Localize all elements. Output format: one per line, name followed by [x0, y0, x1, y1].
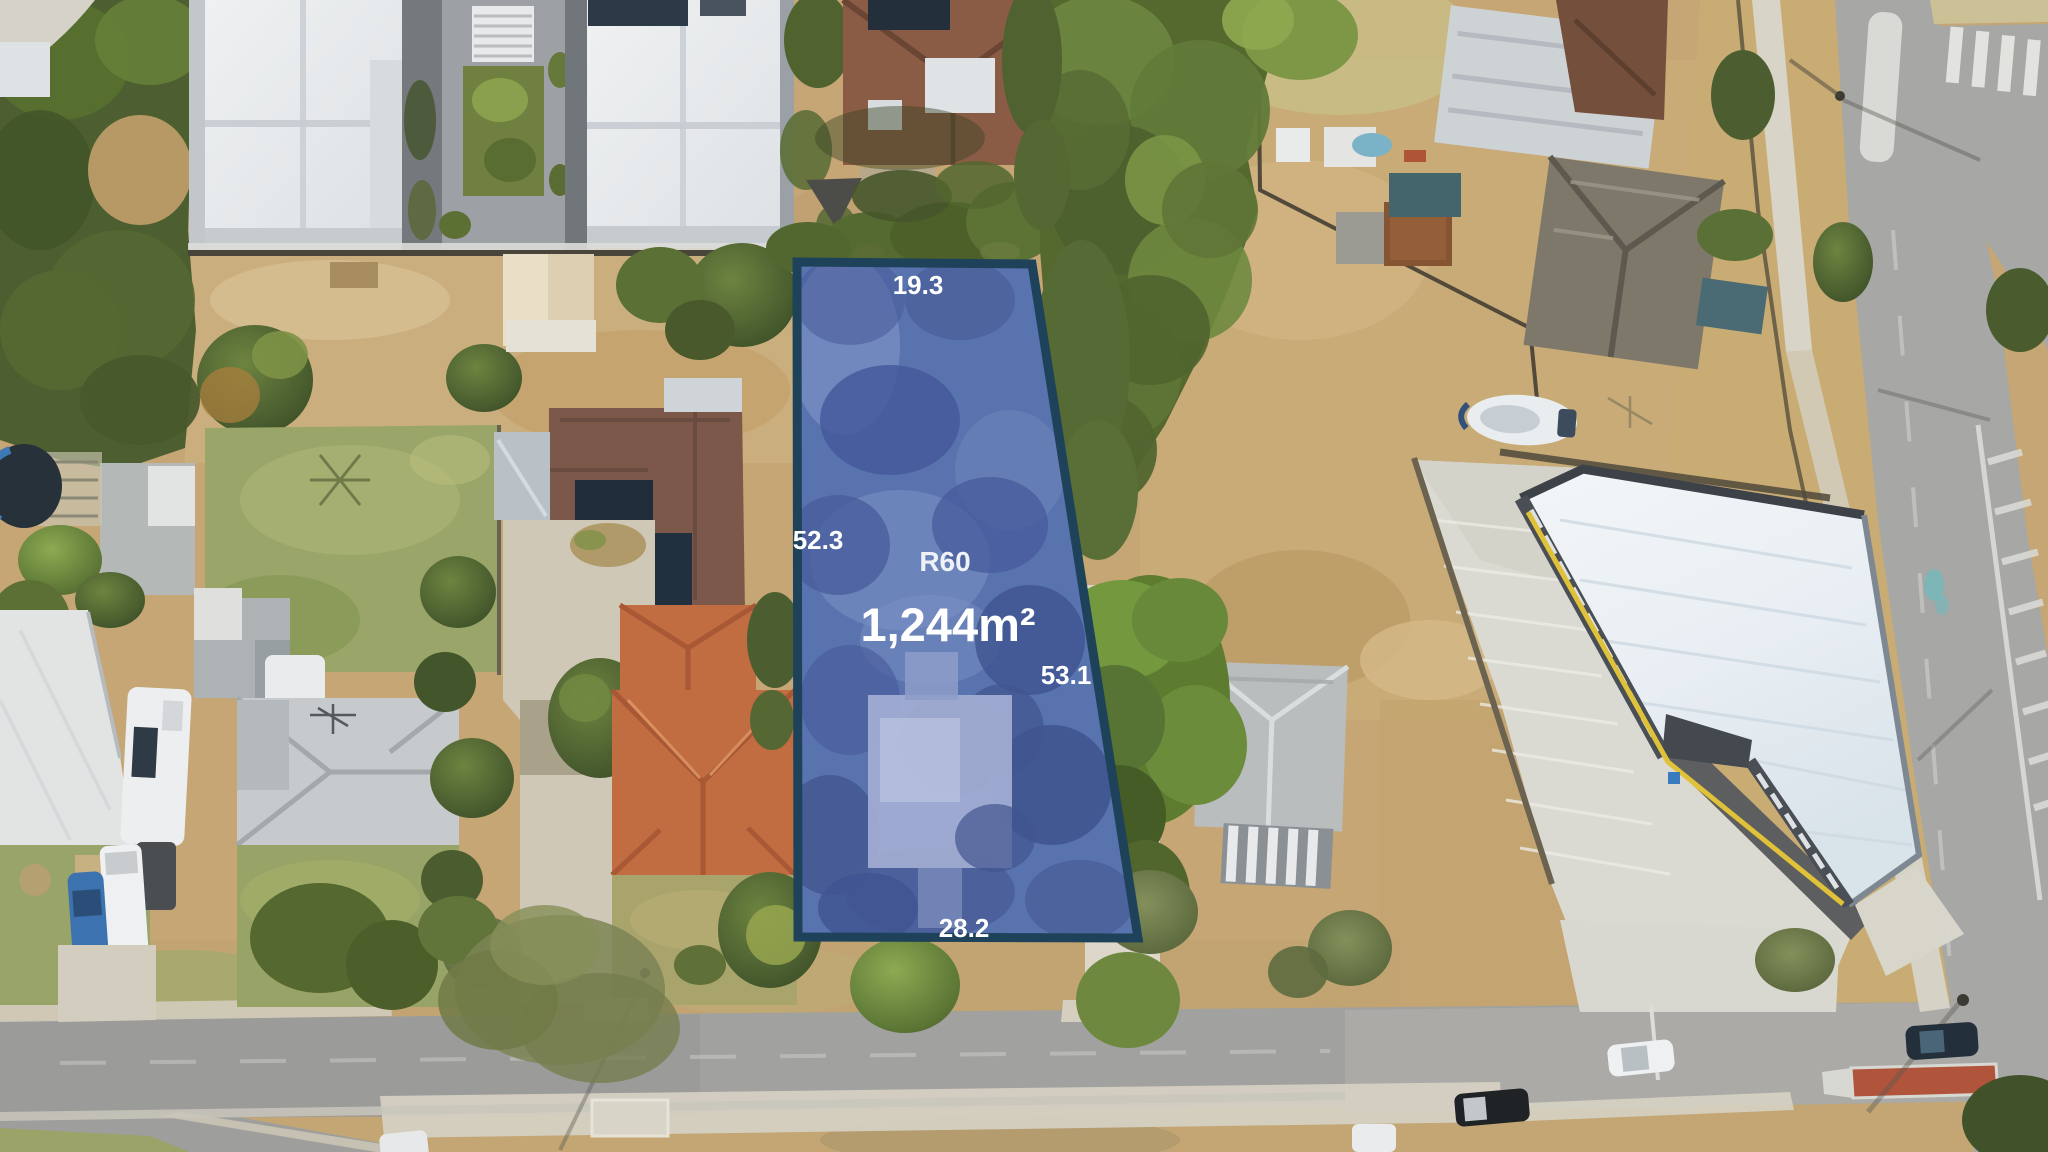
svg-text:R60: R60 — [919, 546, 970, 577]
svg-text:53.1: 53.1 — [1041, 660, 1092, 690]
svg-text:19.3: 19.3 — [893, 270, 944, 300]
svg-text:1,244m²: 1,244m² — [860, 598, 1035, 651]
svg-text:28.2: 28.2 — [939, 913, 990, 943]
svg-text:52.3: 52.3 — [793, 525, 844, 555]
